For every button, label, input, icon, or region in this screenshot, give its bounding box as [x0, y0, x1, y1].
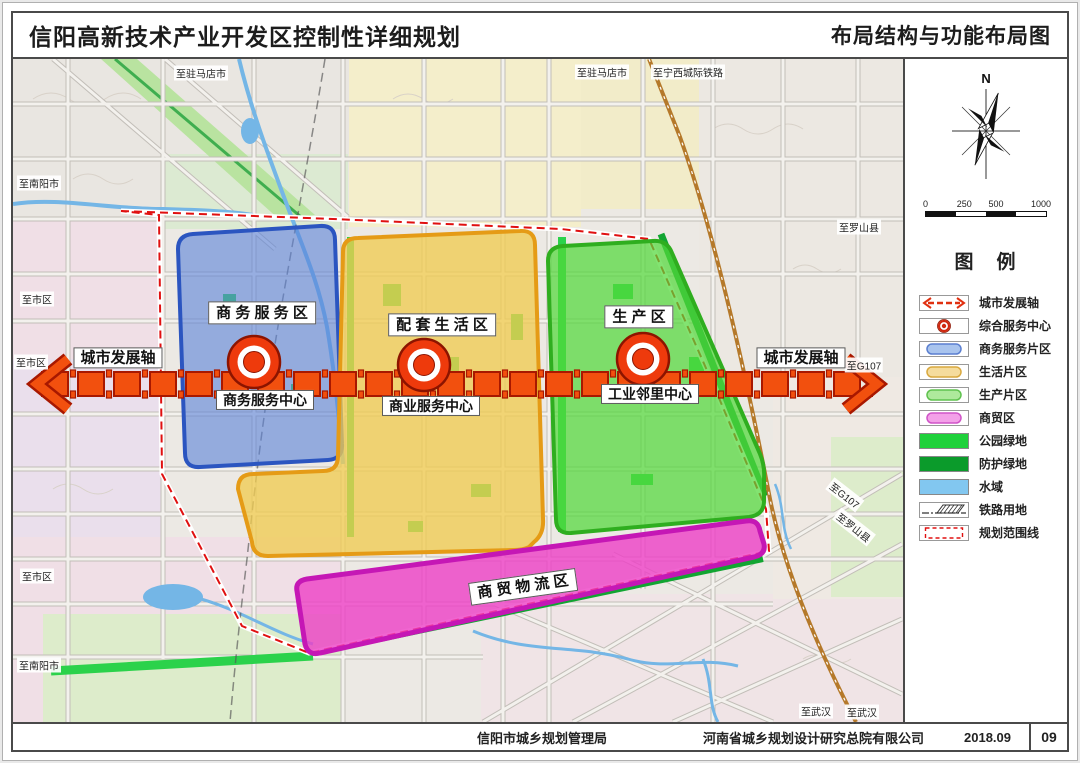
business-service-center-marker [228, 336, 280, 388]
legend-item: 水域 [919, 475, 1061, 498]
road-destination-label: 至南阳市 [17, 176, 61, 191]
road-destination-label: 至南阳市 [17, 658, 61, 673]
legend-label: 生活片区 [979, 363, 1027, 380]
railway-destination-label: 至宁西城际铁路 [651, 65, 725, 80]
scale-tick: 250 [957, 199, 972, 209]
water-legend-icon [919, 479, 969, 495]
legend-list: 城市发展轴 综合服务中心 商务服务片区 [919, 291, 1061, 544]
axis-legend-icon [919, 295, 969, 311]
road-destination-label: 至市区 [14, 355, 48, 370]
legend-title: 图 例 [905, 247, 1067, 274]
plan-title: 信阳高新技术产业开发区控制性详细规划 [29, 18, 461, 52]
map-area: 商 务 服 务 区 商务服务中心 配 套 生 活 区 商业服务中心 生 产 区 … [13, 59, 905, 722]
legend-label: 防护绿地 [979, 455, 1027, 472]
axis-label-west: 城市发展轴 [73, 347, 162, 368]
scale-bar: 0 250 500 1000 [925, 199, 1047, 225]
legend-label: 公园绿地 [979, 432, 1027, 449]
legend-label: 水域 [979, 478, 1003, 495]
scale-tick: 1000 [1031, 199, 1051, 209]
axis-label-east: 城市发展轴 [756, 347, 845, 368]
legend-label: 铁路用地 [979, 501, 1027, 518]
north-arrow: N [944, 69, 1028, 194]
business-zone-legend-icon [919, 341, 969, 357]
map-canvas [13, 59, 903, 722]
industrial-neighborhood-center-marker [617, 333, 669, 385]
road-destination-label: 至市区 [20, 569, 54, 584]
zone-label-production: 生 产 区 [604, 305, 673, 328]
protective-green-legend-icon [919, 456, 969, 472]
north-label: N [981, 71, 990, 86]
sheet-number: 09 [1029, 724, 1067, 750]
road-destination-label: 至驻马店市 [174, 66, 228, 81]
legend-label: 商务服务片区 [979, 340, 1051, 357]
scale-tick: 0 [923, 199, 928, 209]
legend-label: 综合服务中心 [979, 317, 1051, 334]
center-label-industrial: 工业邻里中心 [601, 384, 699, 404]
road-destination-label: 至市区 [20, 292, 54, 307]
legend-panel: N 0 250 500 1000 [905, 59, 1067, 722]
trade-zone-legend-icon [919, 410, 969, 426]
park-green-legend-icon [919, 433, 969, 449]
legend-item: 铁路用地 [919, 498, 1061, 521]
road-destination-label: 至G107 [845, 358, 883, 373]
center-label-business: 商务服务中心 [216, 390, 314, 410]
legend-item: 公园绿地 [919, 429, 1061, 452]
service-center-legend-icon [919, 318, 969, 334]
road-destination-label: 至武汉 [799, 704, 833, 719]
boundary-legend-icon [919, 525, 969, 541]
road-destination-label: 至罗山县 [837, 220, 881, 235]
scale-tick: 500 [988, 199, 1003, 209]
title-block: 信阳市城乡规划管理局 河南省城乡规划设计研究总院有限公司 2018.09 09 [13, 722, 1067, 750]
sheet-frame: 信阳高新技术产业开发区控制性详细规划 布局结构与功能布局图 [11, 11, 1069, 752]
legend-item: 防护绿地 [919, 452, 1061, 475]
legend-label: 商贸区 [979, 409, 1015, 426]
legend-item: 商务服务片区 [919, 337, 1061, 360]
legend-item: 城市发展轴 [919, 291, 1061, 314]
drawing-sheet: 信阳高新技术产业开发区控制性详细规划 布局结构与功能布局图 [2, 2, 1078, 761]
design-institute-name: 河南省城乡规划设计研究总院有限公司 [703, 728, 924, 747]
zone-label-business: 商 务 服 务 区 [208, 301, 316, 324]
legend-item: 规划范围线 [919, 521, 1061, 544]
legend-item: 商贸区 [919, 406, 1061, 429]
sheet-title: 布局结构与功能布局图 [831, 20, 1051, 50]
title-bar: 信阳高新技术产业开发区控制性详细规划 布局结构与功能布局图 [13, 13, 1067, 59]
legend-item: 生产片区 [919, 383, 1061, 406]
commercial-service-center-marker [398, 339, 450, 391]
legend-label: 规划范围线 [979, 524, 1039, 541]
legend-label: 生产片区 [979, 386, 1027, 403]
road-destination-label: 至驻马店市 [575, 65, 629, 80]
production-zone-legend-icon [919, 387, 969, 403]
living-zone-legend-icon [919, 364, 969, 380]
legend-item: 综合服务中心 [919, 314, 1061, 337]
railway-legend-icon [919, 502, 969, 518]
legend-item: 生活片区 [919, 360, 1061, 383]
legend-label: 城市发展轴 [979, 294, 1039, 311]
zone-label-living: 配 套 生 活 区 [388, 313, 496, 336]
road-destination-label: 至武汉 [845, 705, 879, 720]
sheet-date: 2018.09 [964, 730, 1011, 745]
center-label-commercial: 商业服务中心 [382, 396, 480, 416]
authority-name: 信阳市城乡规划管理局 [477, 728, 607, 747]
